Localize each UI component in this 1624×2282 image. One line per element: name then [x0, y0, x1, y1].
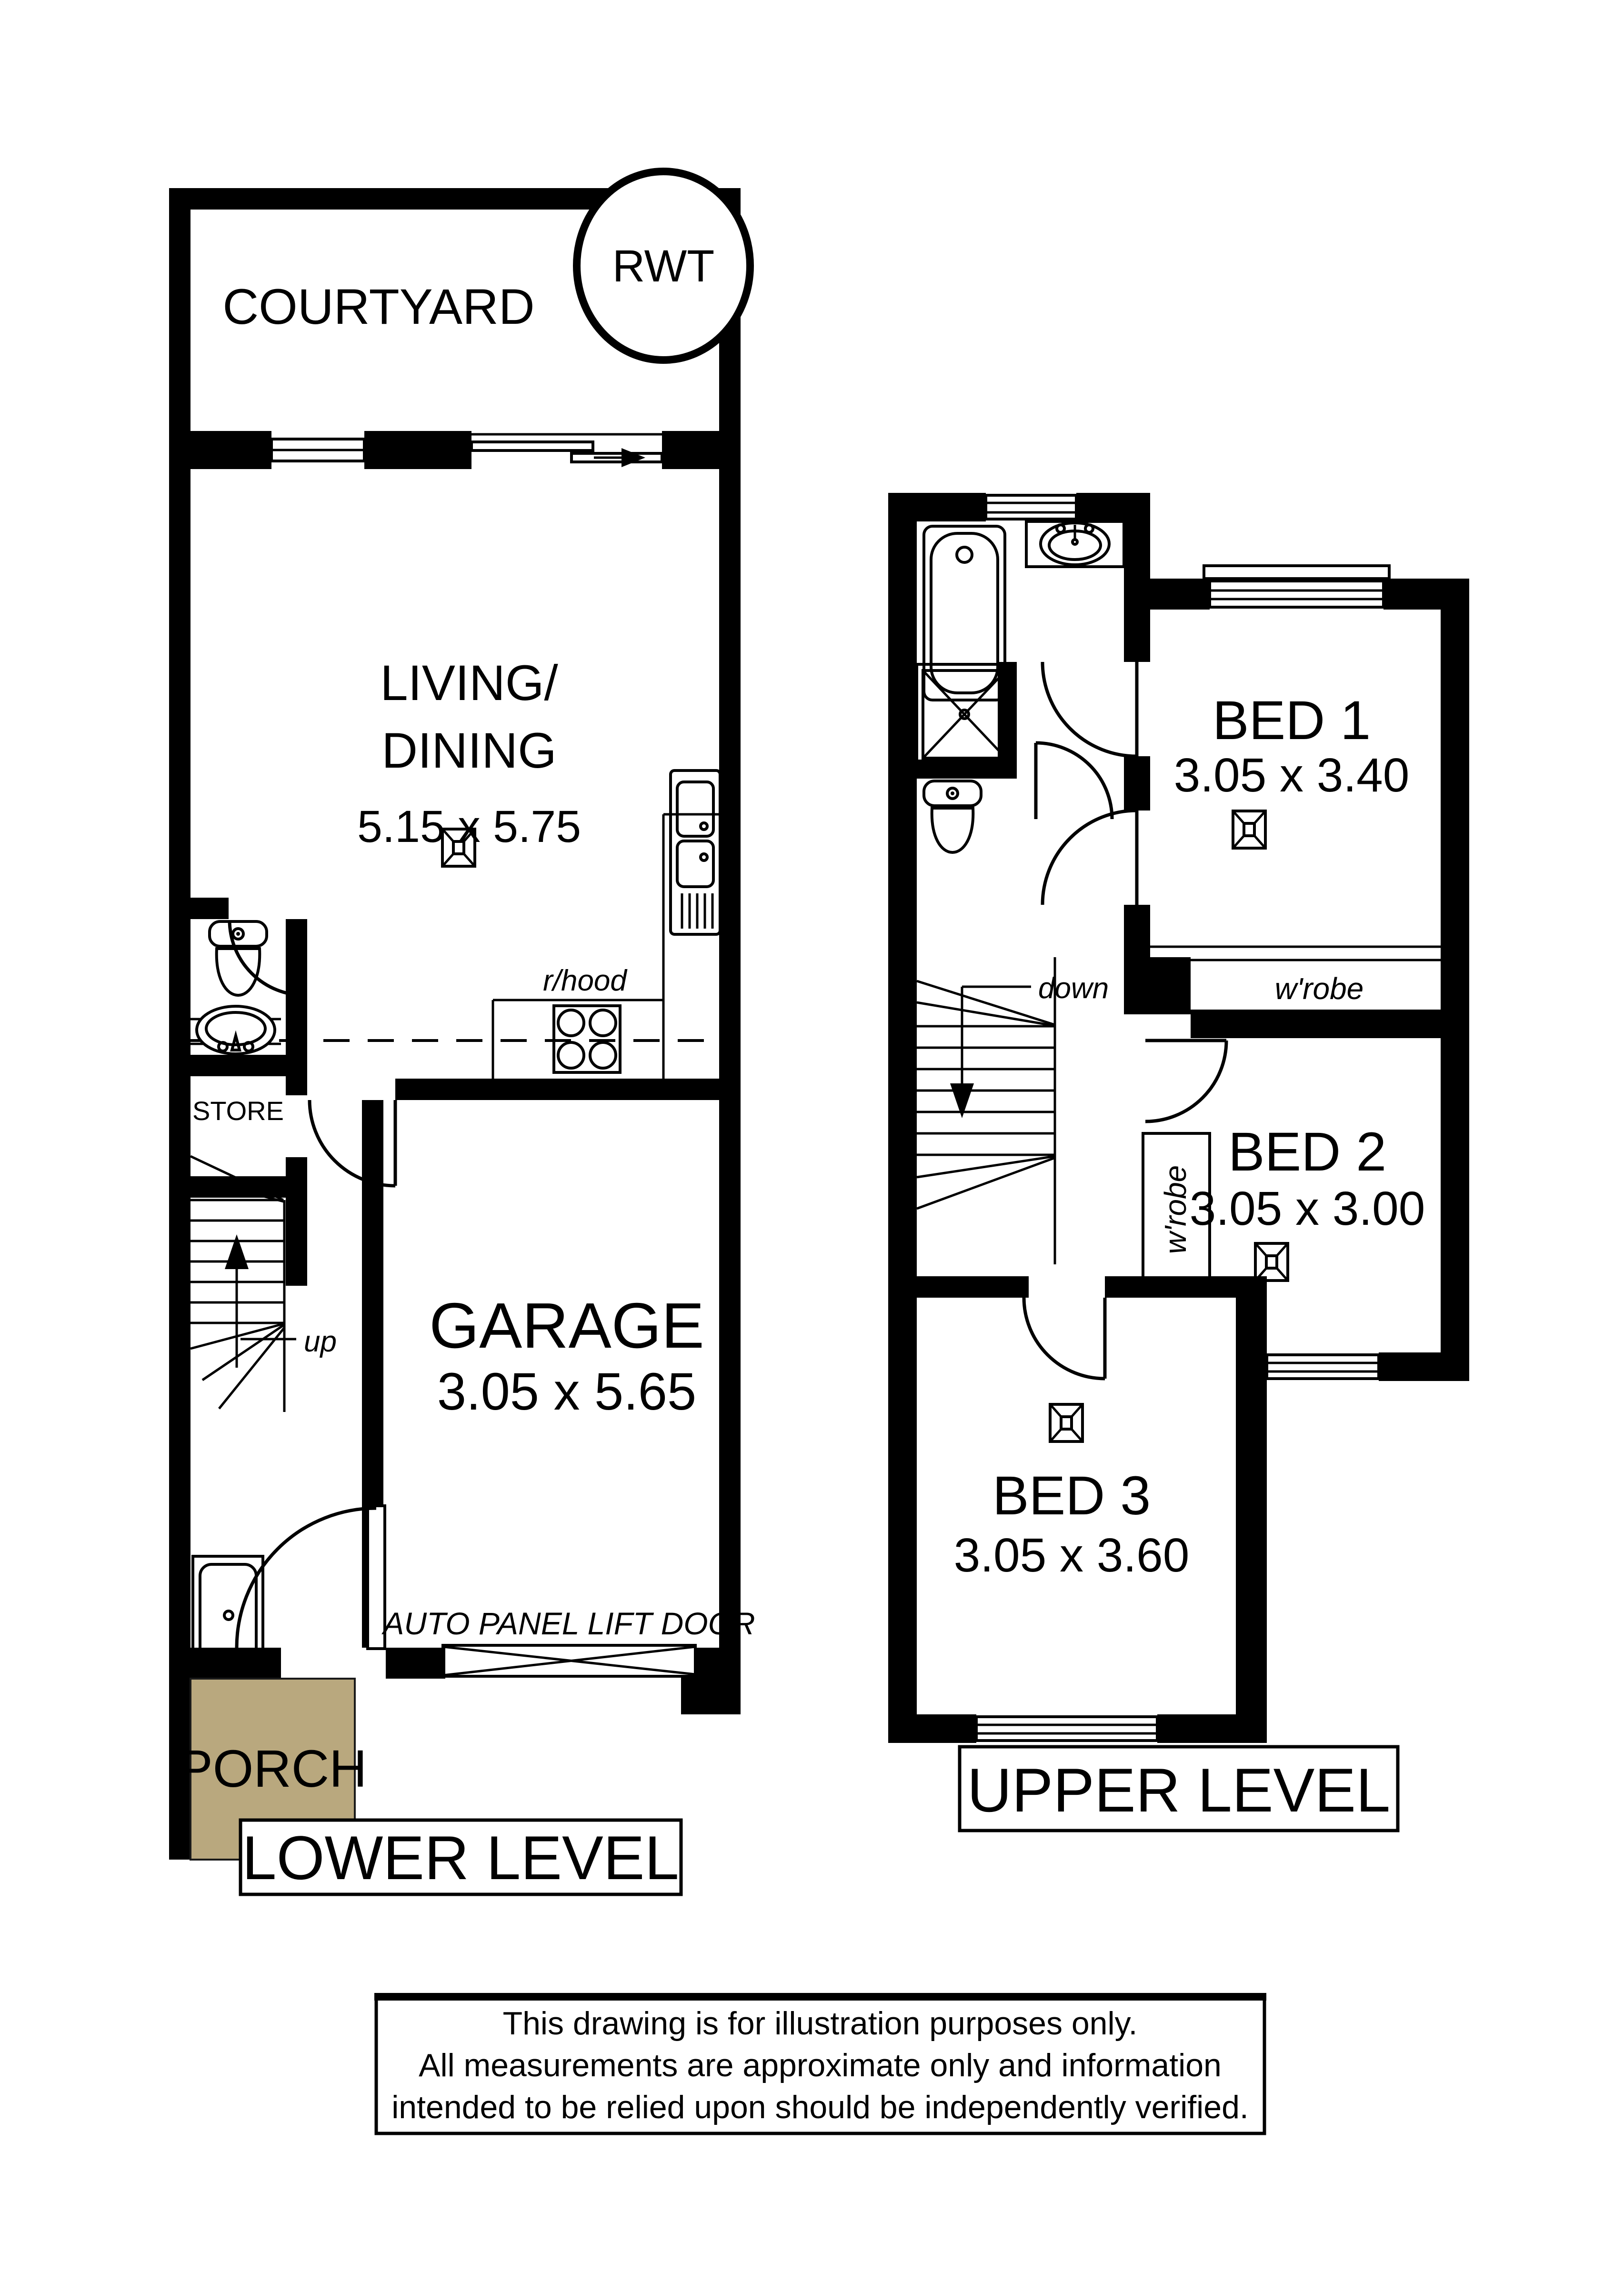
ceiling-light-icon — [1255, 1243, 1288, 1281]
wardrobe-bed1 — [1150, 947, 1441, 960]
wall — [1191, 1010, 1443, 1038]
store-label: STORE — [192, 1096, 284, 1126]
lower-level-label: LOWER LEVEL — [242, 1823, 679, 1892]
wall — [1236, 1276, 1267, 1743]
wall — [888, 493, 917, 1743]
upper-level-plan: down w'robe w'robe — [888, 493, 1469, 1831]
wall — [695, 1648, 741, 1679]
wall — [1124, 905, 1150, 957]
wall — [286, 919, 307, 1076]
floorplan-page: RWT r/hood — [0, 0, 1624, 2282]
wall — [169, 1055, 307, 1076]
garage-dims: 3.05 x 5.65 — [437, 1362, 696, 1421]
wrobe-bed1-label: w'robe — [1275, 971, 1364, 1006]
wrobe-bed2-label: w'robe — [1158, 1165, 1193, 1254]
courtyard-label: COURTYARD — [222, 279, 534, 335]
wall — [1124, 493, 1150, 662]
wall — [1379, 1352, 1469, 1381]
bed1-dims: 3.05 x 3.40 — [1174, 749, 1410, 802]
rhood-label: r/hood — [543, 964, 628, 997]
stairs-down — [917, 957, 1055, 1264]
toilet-upper-icon — [924, 781, 981, 852]
ceiling-light-icon — [1233, 811, 1265, 848]
door-bed1 — [1043, 811, 1137, 905]
disclaimer-line-3: intended to be relied upon should be ind… — [391, 2089, 1249, 2125]
wall — [364, 431, 471, 469]
basin-icon — [190, 1006, 281, 1054]
floorplan-drawing: RWT r/hood — [0, 0, 1624, 2282]
slider-arrow-icon — [622, 448, 645, 467]
bed1-label: BED 1 — [1213, 690, 1371, 751]
wall — [386, 1648, 445, 1679]
wall — [888, 1714, 976, 1743]
bed2-label: BED 2 — [1228, 1121, 1386, 1182]
upper-level-caption: UPPER LEVEL — [960, 1747, 1398, 1831]
window-bed3 — [976, 1717, 1157, 1741]
living-label-1: LIVING/ — [380, 655, 558, 711]
auto-door-label: AUTO PANEL LIFT DOOR — [381, 1606, 755, 1641]
door-bathroom — [1043, 662, 1137, 756]
bathtub-icon — [924, 526, 1005, 700]
porch-label: PORCH — [178, 1740, 367, 1798]
lower-level-plan: RWT r/hood — [169, 171, 755, 1894]
wall — [286, 1176, 307, 1286]
bed3-label: BED 3 — [992, 1465, 1151, 1526]
wall-bulkhead — [1124, 957, 1191, 1014]
wall — [888, 493, 986, 521]
wall — [681, 1676, 741, 1714]
up-label: up — [304, 1325, 337, 1358]
door-bed3 — [1024, 1298, 1105, 1379]
living-label-2: DINING — [381, 723, 557, 779]
rwt-label: RWT — [612, 241, 715, 291]
sliding-door — [471, 434, 662, 467]
wall — [169, 188, 190, 455]
up-arrow-icon — [225, 1234, 249, 1269]
lower-level-caption: LOWER LEVEL — [241, 1820, 681, 1894]
wall — [190, 1648, 281, 1679]
window-bathroom — [986, 495, 1076, 519]
wall — [1124, 579, 1210, 610]
ceiling-light-icon — [1050, 1404, 1083, 1441]
window-bed1 — [1204, 566, 1389, 607]
wall — [719, 431, 741, 1714]
garage-lift-door — [443, 1645, 695, 1676]
disclaimer-box: This drawing is for illustration purpose… — [374, 1995, 1266, 2133]
down-label: down — [1038, 972, 1109, 1005]
living-dims: 5.15 x 5.75 — [357, 801, 581, 852]
upper-level-label: UPPER LEVEL — [967, 1755, 1391, 1825]
bed3-dims: 3.05 x 3.60 — [954, 1529, 1190, 1582]
wall — [1124, 756, 1150, 811]
disclaimer-line-2: All measurements are approximate only an… — [419, 2047, 1222, 2083]
kitchen-sink-icon — [671, 771, 720, 934]
wall — [286, 1157, 307, 1176]
door-bed2 — [1145, 1041, 1226, 1121]
bed2-dims: 3.05 x 3.00 — [1190, 1182, 1425, 1235]
wall — [286, 1076, 307, 1095]
door-wc — [1036, 743, 1112, 819]
wall — [395, 1079, 741, 1100]
wall — [1157, 1714, 1267, 1743]
window-bed2 — [1267, 1355, 1379, 1379]
vanity-basin-icon — [1026, 521, 1124, 567]
disclaimer-line-1: This drawing is for illustration purpose… — [503, 2005, 1138, 2042]
garage-label: GARAGE — [429, 1290, 704, 1361]
wall — [169, 431, 190, 1860]
window-living — [271, 439, 364, 461]
wall — [1441, 579, 1469, 1381]
wall — [888, 1276, 1029, 1298]
wall — [169, 898, 229, 919]
rwt-tank: RWT — [577, 171, 750, 360]
